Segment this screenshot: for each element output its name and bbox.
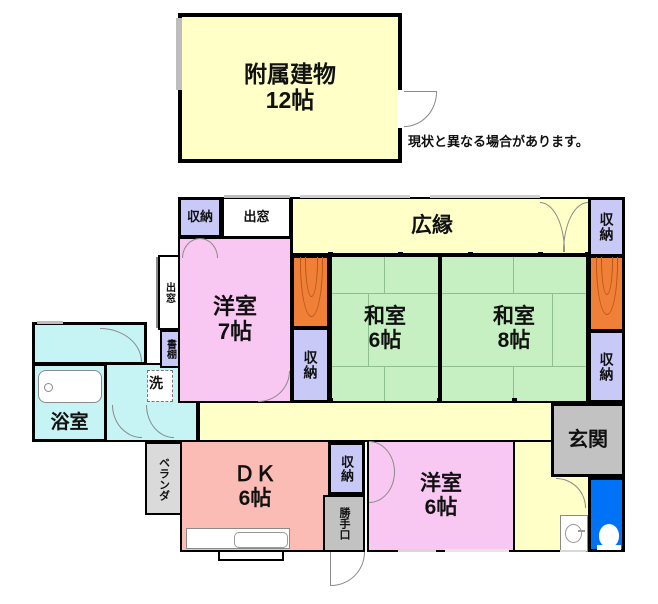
toilet-base-icon <box>597 545 621 550</box>
closet-right: 収納 <box>588 330 625 403</box>
bookshelf: 書棚 <box>160 330 180 368</box>
hiroen-label: 広縁 <box>411 214 453 238</box>
window-bottom <box>398 549 436 552</box>
corridor-horizontal <box>198 401 553 442</box>
floorplan: 附属建物12帖 現状と異なる場合があります。 広縁 和室6帖 和室8帖 洋室7帖… <box>0 0 658 604</box>
toilet-icon <box>599 524 619 547</box>
yoshitsu6-size: 6帖 <box>425 496 458 519</box>
washbasin-tap-icon <box>578 530 585 532</box>
closet-left: 収納 <box>291 327 330 403</box>
closet-label: 収納 <box>187 210 213 225</box>
window-bottom <box>560 550 586 552</box>
washitsu6-size: 6帖 <box>369 329 402 352</box>
pillar <box>512 398 517 403</box>
kitchen-counter-icon <box>186 528 290 549</box>
window-top <box>224 195 290 198</box>
washitsu6-name: 和室 <box>364 305 406 328</box>
washbasin-bowl-icon <box>565 524 582 543</box>
backdoor: 勝手口 <box>323 495 365 552</box>
baywindow-label: 出窓 <box>243 210 269 225</box>
yoshitsu6-label: 洋室6帖 <box>420 472 462 519</box>
genkan-label: 玄関 <box>568 429 608 451</box>
window-top <box>430 195 540 198</box>
annex-window <box>176 18 182 90</box>
closet-top-left: 収納 <box>178 197 222 238</box>
dk-label: ＤＫ6帖 <box>234 463 276 510</box>
pillar <box>585 252 590 257</box>
closet-label: 収納 <box>337 455 356 483</box>
closet-top-right: 収納 <box>588 197 625 257</box>
veranda: ベランダ <box>145 442 182 515</box>
pillar <box>328 398 333 403</box>
room-toilet <box>588 477 625 552</box>
oshiire-left <box>291 255 330 329</box>
room-washitsu-8: 和室8帖 <box>440 255 588 403</box>
washitsu8-label: 和室8帖 <box>442 257 586 401</box>
yoshitsu7-label: 洋室7帖 <box>213 295 257 344</box>
dk-name: ＤＫ <box>234 463 276 486</box>
annex-label: 附属建物12帖 <box>244 62 336 114</box>
washitsu8-name: 和室 <box>493 305 535 328</box>
closet-label: 収納 <box>597 212 617 242</box>
closet-label: 収納 <box>301 350 321 380</box>
annex-size: 12帖 <box>266 87 315 113</box>
pillar <box>398 252 403 257</box>
backdoor-arc <box>331 552 365 586</box>
pillar <box>437 398 442 403</box>
veranda-label: ベランダ <box>156 457 172 501</box>
room-washitsu-6: 和室6帖 <box>330 255 440 403</box>
yoshitsu7-name: 洋室 <box>213 294 257 319</box>
bathtub-drain-icon <box>44 383 53 392</box>
oshiire-right <box>588 255 625 332</box>
kitchen-sink-icon <box>234 532 288 548</box>
pillar <box>538 252 543 257</box>
backdoor-label: 勝手口 <box>336 507 352 540</box>
window-bottom <box>445 549 509 552</box>
bathtub-icon <box>38 370 102 403</box>
yoshitsu6-name: 洋室 <box>420 472 462 495</box>
room-genkan: 玄関 <box>551 403 625 477</box>
porch-step <box>218 552 284 561</box>
disclaimer-note: 現状と異なる場合があります。 <box>408 131 589 150</box>
closet-dk: 収納 <box>328 442 365 495</box>
room-annex: 附属建物12帖 <box>178 13 402 163</box>
bookshelf-label: 書棚 <box>163 339 178 359</box>
room-bath: 浴室 <box>32 363 107 442</box>
washitsu8-size: 8帖 <box>498 329 531 352</box>
bath-label: 浴室 <box>35 412 104 433</box>
baywindow-left-glass <box>156 257 158 328</box>
bath-entry-window <box>37 321 63 324</box>
washbasin-icon <box>560 515 588 552</box>
pillar <box>468 252 473 257</box>
dk-size: 6帖 <box>239 487 272 510</box>
pillar <box>328 252 333 257</box>
baywindow-left: 出窓 <box>158 255 180 330</box>
yoshitsu7-size: 7帖 <box>218 319 252 344</box>
baywindow-top: 出窓 <box>222 197 291 238</box>
annex-name: 附属建物 <box>244 61 336 87</box>
closet-label: 収納 <box>597 352 617 382</box>
washitsu6-label: 和室6帖 <box>332 257 438 401</box>
washer-label: 洗 <box>149 376 163 392</box>
baywindow-label: 出窓 <box>162 282 177 304</box>
window-top <box>300 195 410 198</box>
annex-door-arc <box>404 92 437 127</box>
